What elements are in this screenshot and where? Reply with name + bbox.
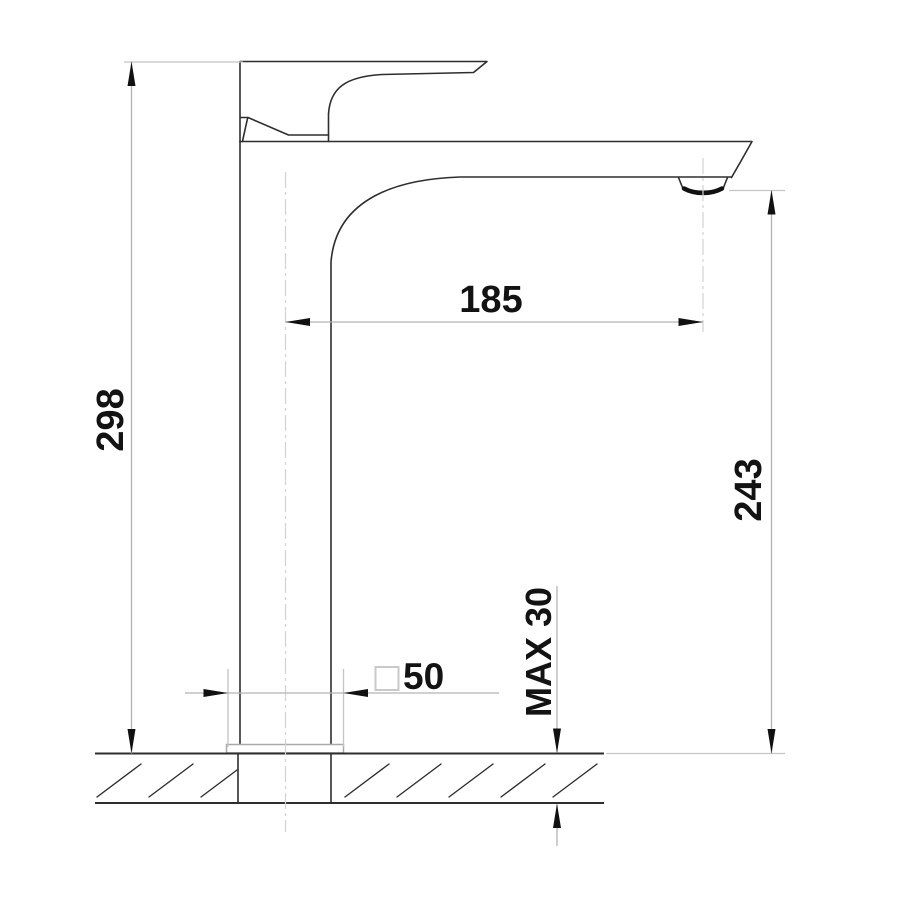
label-spout-outlet-height: 243 [728,458,770,521]
hatch-line [201,770,237,797]
label-spout-reach: 185 [459,279,522,321]
counter-hatching [97,764,597,797]
handle-base-skirt [243,119,248,142]
dimension-labels: 185 298 243 MAX 30 50 [90,279,770,717]
label-height-total: 298 [90,388,132,451]
hatch-line [501,764,545,797]
hatch-line [345,764,389,797]
centerlines [286,158,704,832]
arrow-down-icon [553,729,561,754]
arrow-up-icon [768,190,776,215]
faucet-outline [240,62,752,746]
arrow-left-icon [344,689,369,697]
arrow-up-icon [553,804,561,829]
technical-drawing-page: 185 298 243 MAX 30 50 [0,0,900,899]
arrow-down-icon [768,729,776,754]
tap-dimension-drawing: 185 298 243 MAX 30 50 [0,0,900,899]
hatch-line [397,764,441,797]
arrow-right-icon [204,689,229,697]
dimension-lines [124,62,785,846]
arrow-right-icon [679,318,704,326]
hatch-line [553,764,597,797]
spout-top-edge [240,142,752,178]
hatch-line [97,764,141,797]
label-deck-thickness-max: MAX 30 [518,587,559,717]
counter-section [95,754,604,804]
square-symbol-icon [376,667,399,690]
handle-lever [240,62,487,142]
arrow-down-icon [128,729,136,754]
label-base-size: 50 [403,656,444,697]
hatch-line [149,764,193,797]
arrow-up-icon [128,62,136,87]
hatch-line [449,764,493,797]
arrow-left-icon [286,318,311,326]
